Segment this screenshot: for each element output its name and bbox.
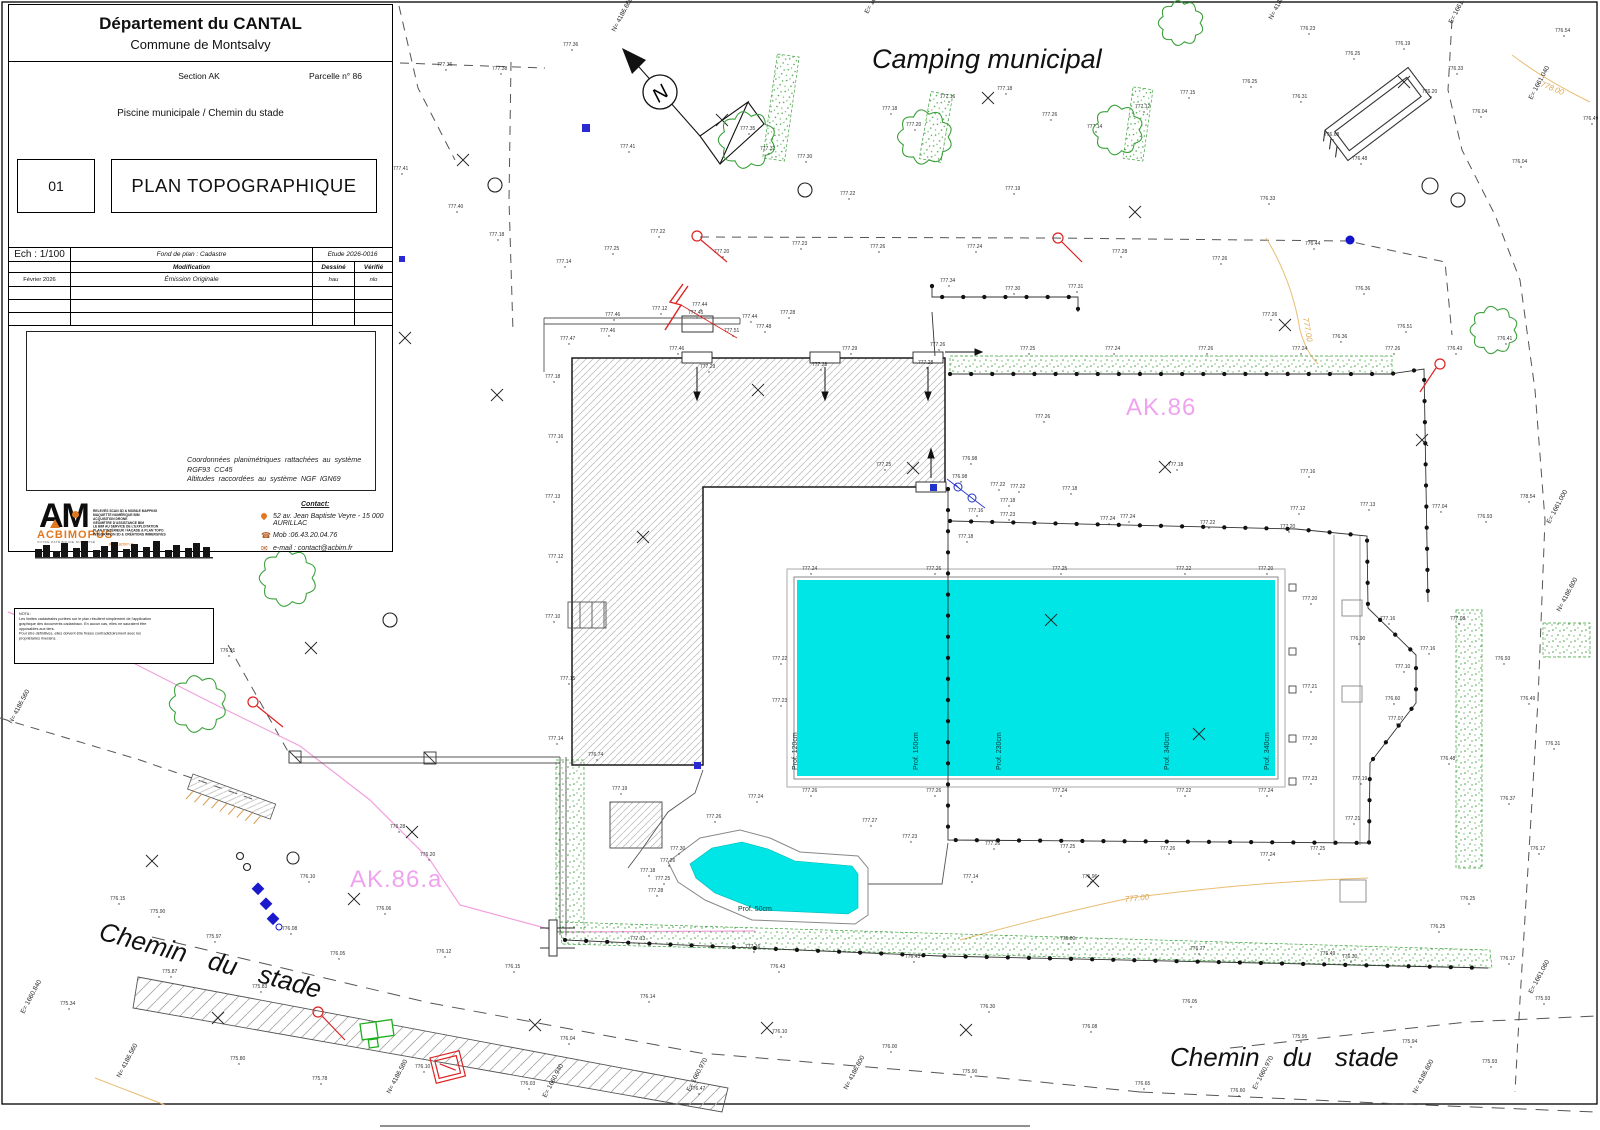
spot-elevation: 777.16 xyxy=(1380,616,1396,622)
spot-point xyxy=(556,743,557,744)
title-block-header: Département du CANTAL Commune de Montsal… xyxy=(9,5,392,62)
spot-elevation: 777.12 xyxy=(1135,104,1151,110)
spot-elevation: 777.26 xyxy=(706,814,722,820)
spot-elevation: 777.45 xyxy=(688,310,704,316)
spot-elevation: 777.18 xyxy=(489,232,505,238)
spot-elevation: 776.80 xyxy=(1060,936,1076,942)
spot-elevation: 777.24 xyxy=(967,244,983,250)
spot-elevation: 777.18 xyxy=(958,534,974,540)
spot-elevation: 777.18 xyxy=(1168,462,1184,468)
spot-point xyxy=(656,895,657,896)
empty-cell xyxy=(9,313,71,326)
spot-elevation: 777.28 xyxy=(1112,249,1128,255)
spot-point xyxy=(934,573,935,574)
spot-point xyxy=(677,353,678,354)
spot-elevation: 777.18 xyxy=(1000,498,1016,504)
grid-coordinate-label: N= 4186.600 xyxy=(843,1054,867,1091)
spot-elevation: 776.90 xyxy=(1350,636,1366,642)
grid-coordinate-label: N= 4186.560 xyxy=(116,1042,140,1079)
empty-cell xyxy=(355,287,393,300)
spot-elevation: 775.90 xyxy=(150,909,166,915)
empty-cell xyxy=(355,300,393,313)
spot-point xyxy=(1396,723,1397,724)
spot-point xyxy=(1503,663,1504,664)
spot-point xyxy=(1076,291,1077,292)
spot-point xyxy=(1428,653,1429,654)
spot-point xyxy=(870,825,871,826)
spot-elevation: 777.25 xyxy=(1020,346,1036,352)
legend-box: Coordonnées planimétriques rattachées au… xyxy=(26,331,376,491)
direction-arrow xyxy=(945,349,982,355)
spot-elevation: 776.19 xyxy=(1395,41,1411,47)
spot-point xyxy=(1520,166,1521,167)
skyline-building xyxy=(35,549,42,557)
grid-coordinate-label: E= 1661.000 xyxy=(1546,489,1570,525)
spot-point xyxy=(966,541,967,542)
spot-elevation: 777.44 xyxy=(742,314,758,320)
spot-elevation: 777.46 xyxy=(605,312,621,318)
spot-point xyxy=(1060,795,1061,796)
spot-point xyxy=(948,285,949,286)
spot-elevation: 776.31 xyxy=(1545,741,1561,747)
spot-elevation: 777.22 xyxy=(1200,520,1216,526)
spot-elevation: 777.21 xyxy=(1302,684,1318,690)
spot-elevation: 776.25 xyxy=(1345,51,1361,57)
spot-elevation: 777.48 xyxy=(756,324,772,330)
spot-point xyxy=(764,331,765,332)
spot-elevation: 777.18 xyxy=(545,374,561,380)
spot-point xyxy=(1480,116,1481,117)
spot-point xyxy=(1298,513,1299,514)
empty-cell xyxy=(355,313,393,326)
spot-elevation: 777.25 xyxy=(1060,844,1076,850)
main-pool xyxy=(787,569,1296,787)
empty-cell xyxy=(71,287,313,300)
grid-coordinate-label: N= 4186.660 xyxy=(611,0,635,33)
spot-elevation: 775.80 xyxy=(230,1056,246,1062)
spot-elevation: 777.13 xyxy=(545,494,561,500)
modification-header: Modification xyxy=(71,262,313,273)
spot-elevation: 777.18 xyxy=(882,106,898,112)
spot-point xyxy=(568,683,569,684)
spot-point xyxy=(1208,527,1209,528)
revision-description: Émission Originale xyxy=(71,273,313,287)
spot-elevation: 775.87 xyxy=(162,969,178,975)
spot-elevation: 777.29 xyxy=(842,346,858,352)
spot-elevation: 777.18 xyxy=(997,86,1013,92)
spot-elevation: 776.03 xyxy=(520,1081,536,1087)
spot-elevation: 777.12 xyxy=(548,554,564,560)
spot-elevation: 775.94 xyxy=(1402,1039,1418,1045)
road-strip xyxy=(133,977,728,1112)
spot-point xyxy=(170,976,171,977)
spot-point xyxy=(975,251,976,252)
skyline-building xyxy=(203,547,210,557)
spot-point xyxy=(401,173,402,174)
spot-point xyxy=(1543,1003,1544,1004)
spot-elevation: 777.19 xyxy=(1352,776,1368,782)
spot-point xyxy=(913,961,914,962)
spot-point xyxy=(708,371,709,372)
spot-elevation: 777.40 xyxy=(448,204,464,210)
spot-point xyxy=(1350,961,1351,962)
spot-point xyxy=(663,883,664,884)
spot-elevation: 777.38 xyxy=(492,66,508,72)
spot-elevation: 776.28 xyxy=(390,824,406,830)
checked-header: Vérifié xyxy=(355,262,393,273)
spot-point xyxy=(1288,531,1289,532)
spot-elevation: 776.44 xyxy=(1305,241,1321,247)
spot-elevation: 777.18 xyxy=(640,868,656,874)
spot-elevation: 777.24 xyxy=(1260,852,1276,858)
spot-point xyxy=(1068,943,1069,944)
spot-point xyxy=(1340,341,1341,342)
empty-cell xyxy=(313,313,355,326)
spot-elevation: 777.26 xyxy=(1035,414,1051,420)
spot-elevation: 777.30 xyxy=(670,846,686,852)
spot-point xyxy=(1403,48,1404,49)
spot-elevation: 776.00 xyxy=(882,1044,898,1050)
spot-elevation: 777.14 xyxy=(548,736,564,742)
spot-point xyxy=(750,321,751,322)
spot-point xyxy=(1591,123,1592,124)
spot-elevation: 777.10 xyxy=(1395,664,1411,670)
section-label: Section AK xyxy=(129,71,269,81)
spot-elevation: 777.20 xyxy=(1302,596,1318,602)
spot-point xyxy=(988,1011,989,1012)
spot-point xyxy=(308,881,309,882)
tree-icon xyxy=(259,550,315,607)
spot-elevation: 777.20 xyxy=(1258,566,1274,572)
spot-point xyxy=(1184,795,1185,796)
skyline-building xyxy=(165,550,172,557)
skyline-building xyxy=(143,547,150,557)
spot-elevation: 777.28 xyxy=(812,362,828,368)
spot-point xyxy=(1268,859,1269,860)
spot-point xyxy=(850,353,851,354)
spot-elevation: 775.90 xyxy=(962,1069,978,1075)
spot-elevation: 777.31 xyxy=(1068,284,1084,290)
spot-point xyxy=(1188,97,1189,98)
spot-point xyxy=(934,795,935,796)
spot-elevation: 777.25 xyxy=(655,876,671,882)
skyline-building xyxy=(43,545,50,557)
spot-point xyxy=(596,759,597,760)
spot-elevation: 777.15 xyxy=(1180,90,1196,96)
spot-point xyxy=(612,253,613,254)
grid-cross-icon xyxy=(457,154,469,166)
spot-point xyxy=(756,801,757,802)
spot-elevation: 776.36 xyxy=(1332,334,1348,340)
spot-point xyxy=(1538,853,1539,854)
skyline-building xyxy=(173,545,180,557)
empty-cell xyxy=(9,262,71,273)
grid-cross-icon xyxy=(1416,434,1428,446)
spot-point xyxy=(820,369,821,370)
georef-line2: Altitudes raccordées au système NGF IGN6… xyxy=(187,474,369,484)
spot-point xyxy=(384,913,385,914)
grid-cross-icon xyxy=(406,826,418,838)
spot-elevation: 777.23 xyxy=(1000,512,1016,518)
spot-point xyxy=(1410,1046,1411,1047)
spot-point xyxy=(970,1076,971,1077)
empty-cell xyxy=(71,313,313,326)
empty-cell xyxy=(313,287,355,300)
spot-point xyxy=(320,1083,321,1084)
spot-elevation: 777.16 xyxy=(940,94,956,100)
company-services: RELEVÉS SCAN 3D & MOBILE MAPPING MAQUETT… xyxy=(93,510,214,537)
spot-point xyxy=(1505,343,1506,344)
spot-elevation: 777.07 xyxy=(1388,716,1404,722)
spot-elevation: 776.43 xyxy=(1447,346,1463,352)
spot-elevation: 775.93 xyxy=(1535,996,1551,1002)
grid-cross-icon xyxy=(1279,319,1291,331)
spot-point xyxy=(423,1071,424,1072)
spot-elevation: 777.24 xyxy=(1258,788,1274,794)
spot-elevation: 776.20 xyxy=(1422,89,1438,95)
revision-drawn-by: hau xyxy=(313,273,355,287)
grid-cross-icon xyxy=(982,92,994,104)
spot-elevation: 777.20 xyxy=(714,249,730,255)
grid-cross-icon xyxy=(529,1019,541,1031)
spot-point xyxy=(1313,248,1314,249)
spot-elevation: 776.91 xyxy=(220,648,236,654)
spot-elevation: 777.51 xyxy=(724,328,740,334)
spot-point xyxy=(608,335,609,336)
spot-elevation: 776.10 xyxy=(772,1029,788,1035)
spot-point xyxy=(748,133,749,134)
spot-point xyxy=(1308,33,1309,34)
spot-point xyxy=(848,198,849,199)
tree-icon xyxy=(1470,306,1517,353)
spot-point xyxy=(568,1043,569,1044)
spot-elevation: 777.16 xyxy=(745,944,761,950)
spot-point xyxy=(228,655,229,656)
spot-point xyxy=(1360,783,1361,784)
spot-elevation: 776.48 xyxy=(1352,156,1368,162)
pool-depth-label: Prof. 120cm xyxy=(792,732,800,770)
spot-point xyxy=(1220,263,1221,264)
skyline-building xyxy=(123,549,130,557)
spot-elevation: 777.13 xyxy=(630,936,646,942)
spot-elevation: 777.23 xyxy=(1302,776,1318,782)
topographic-plan-sheet: N xyxy=(0,0,1600,1130)
spot-elevation: 777.24 xyxy=(1105,346,1121,352)
spot-elevation: 777.14 xyxy=(1087,124,1103,130)
spot-point xyxy=(500,73,501,74)
spot-point xyxy=(214,941,215,942)
area-title: Camping municipal xyxy=(872,44,1102,75)
spot-point xyxy=(926,367,927,368)
spot-point xyxy=(658,236,659,237)
spot-elevation: 776.60 xyxy=(1385,696,1401,702)
spot-elevation: 776.74 xyxy=(588,752,604,758)
spot-elevation: 777.26 xyxy=(1385,346,1401,352)
spot-point xyxy=(1388,623,1389,624)
road-label-right: Chemin du stade xyxy=(1170,1042,1399,1073)
spot-elevation: 776.33 xyxy=(1260,196,1276,202)
spot-point xyxy=(1013,293,1014,294)
city-skyline-icon xyxy=(35,539,215,559)
contact-heading: Contact: xyxy=(301,501,387,508)
spot-elevation: 777.18 xyxy=(1062,486,1078,492)
spot-point xyxy=(970,463,971,464)
spot-point xyxy=(810,795,811,796)
spot-elevation: 777.26 xyxy=(926,788,942,794)
spot-point xyxy=(810,573,811,574)
spot-point xyxy=(778,971,779,972)
spot-elevation: 777.26 xyxy=(1212,256,1228,262)
spot-point xyxy=(513,971,514,972)
spot-elevation: 776.48 xyxy=(1440,756,1456,762)
tree-icon xyxy=(169,676,225,733)
spot-elevation: 777.14 xyxy=(556,259,572,265)
spot-elevation: 777.25 xyxy=(1310,846,1326,852)
spot-elevation: 776.25 xyxy=(1430,924,1446,930)
spot-elevation: 776.60 xyxy=(1230,1088,1246,1094)
paddling-depth-label: Prof. 50cm xyxy=(738,906,772,913)
spot-point xyxy=(1508,963,1509,964)
spot-point xyxy=(444,956,445,957)
spot-point xyxy=(1456,73,1457,74)
spot-point xyxy=(1266,573,1267,574)
grid-cross-icon xyxy=(1129,206,1141,218)
spot-point xyxy=(648,875,649,876)
spot-elevation: 776.43 xyxy=(770,964,786,970)
spot-point xyxy=(620,793,621,794)
spot-elevation: 777.16 xyxy=(968,508,984,514)
spot-point xyxy=(1430,96,1431,97)
spot-elevation: 777.28 xyxy=(648,888,664,894)
grid-coordinate-label: N= 4186.600 xyxy=(1556,576,1580,613)
spot-point xyxy=(890,1051,891,1052)
spot-point xyxy=(338,958,339,959)
spot-point xyxy=(1508,803,1509,804)
pool-depth-label: Prof. 340cm xyxy=(1164,732,1172,770)
spot-elevation: 777.46 xyxy=(669,346,685,352)
spot-point xyxy=(1238,1095,1239,1096)
phone-icon: ☎ xyxy=(261,532,273,540)
spot-point xyxy=(993,848,994,849)
spot-point xyxy=(890,113,891,114)
spot-elevation: 776.20 xyxy=(420,852,436,858)
spot-elevation: 777.44 xyxy=(692,302,708,308)
skyline-building xyxy=(73,548,80,557)
spot-elevation: 777.04 xyxy=(1432,504,1448,510)
pool-depth-label: Prof. 340cm xyxy=(1264,732,1272,770)
parcel-number: Parcelle n° 86 xyxy=(309,71,362,81)
spot-elevation: 777.25 xyxy=(604,246,620,252)
paddling-water xyxy=(690,842,858,914)
spot-elevation: 776.51 xyxy=(1397,324,1413,330)
spot-elevation: 776.49 xyxy=(1520,696,1536,702)
spot-point xyxy=(1405,331,1406,332)
spot-elevation: 776.31 xyxy=(1292,94,1308,100)
parcel-label-ak86a: AK.86.a xyxy=(350,866,442,894)
spot-elevation: 777.15 xyxy=(560,676,576,682)
spot-elevation: 777.24 xyxy=(748,794,764,800)
spot-point xyxy=(68,1008,69,1009)
spot-elevation: 777.10 xyxy=(545,614,561,620)
skyline-building xyxy=(111,542,118,557)
spot-elevation: 776.25 xyxy=(1242,79,1258,85)
spot-point xyxy=(1113,353,1114,354)
spot-point xyxy=(1190,1006,1191,1007)
spot-point xyxy=(1310,783,1311,784)
spot-elevation: 776.33 xyxy=(1448,66,1464,72)
commune-title: Commune de Montsalvy xyxy=(9,37,392,52)
location-pin-icon xyxy=(261,513,273,521)
spot-point xyxy=(971,881,972,882)
service-line: INTÉGRATION 3D & CRÉATIONS IMMERSIVES xyxy=(93,533,214,537)
spot-point xyxy=(1143,111,1144,112)
spot-elevation: 775.97 xyxy=(206,934,222,940)
grid-coordinate-label: N= 4186.580 xyxy=(386,1058,410,1095)
north-arrow: N xyxy=(622,48,764,164)
spot-elevation: 777.41 xyxy=(393,166,409,172)
logo-triangle-icon xyxy=(50,519,60,528)
sheet-number: 01 xyxy=(17,159,95,213)
spot-point xyxy=(1468,903,1469,904)
spot-elevation: 776.37 xyxy=(1500,796,1516,802)
grid-cross-icon xyxy=(305,642,317,654)
grid-cross-icon xyxy=(761,1022,773,1034)
spot-point xyxy=(1120,256,1121,257)
tree-icon xyxy=(1158,1,1202,46)
spot-elevation: 777.35 xyxy=(740,126,756,132)
spot-point xyxy=(1528,501,1529,502)
spot-elevation: 777.08 xyxy=(1450,616,1466,622)
spot-elevation: 777.30 xyxy=(797,154,813,160)
spot-elevation: 775.34 xyxy=(60,1001,76,1007)
spot-elevation: 778.54 xyxy=(1520,494,1536,500)
spot-point xyxy=(805,161,806,162)
spot-point xyxy=(1403,671,1404,672)
spot-elevation: 777.28 xyxy=(780,310,796,316)
spot-elevation: 776.49 xyxy=(1320,951,1336,957)
spot-elevation: 777.26 xyxy=(1042,112,1058,118)
grid-cross-icon xyxy=(399,332,411,344)
spot-elevation: 776.14 xyxy=(640,994,656,1000)
scale-cell: Ech : 1/100 xyxy=(9,248,71,262)
spot-elevation: 777.27 xyxy=(862,818,878,824)
spot-elevation: 777.34 xyxy=(940,278,956,284)
empty-cell xyxy=(9,300,71,313)
plan-subject: Piscine municipale / Chemin du stade xyxy=(9,108,392,119)
spot-elevation: 777.22 xyxy=(650,229,666,235)
georeferencing-note: Coordonnées planimétriques rattachées au… xyxy=(187,455,369,484)
spot-elevation: 777.26 xyxy=(985,841,1001,847)
spot-point xyxy=(698,1093,699,1094)
spot-elevation: 777.28 xyxy=(918,360,934,366)
spot-point xyxy=(628,151,629,152)
spot-elevation: 776.93 xyxy=(1495,656,1511,662)
spot-point xyxy=(556,561,557,562)
spot-point xyxy=(553,621,554,622)
spot-point xyxy=(780,663,781,664)
spot-elevation: 777.19 xyxy=(1005,186,1021,192)
contour-elevation-label: 777.00 xyxy=(1124,892,1150,904)
spot-point xyxy=(1393,703,1394,704)
spot-point xyxy=(1458,623,1459,624)
spot-point xyxy=(568,343,569,344)
study-cell: Etude 2026-0016 xyxy=(313,248,393,262)
spot-elevation: 777.26 xyxy=(870,244,886,250)
grid-cross-icon xyxy=(146,855,158,867)
spot-elevation: 777.16 xyxy=(1300,469,1316,475)
grid-coordinate-label: N= 4186.600 xyxy=(1412,1058,1436,1095)
skyline-building xyxy=(101,546,108,557)
